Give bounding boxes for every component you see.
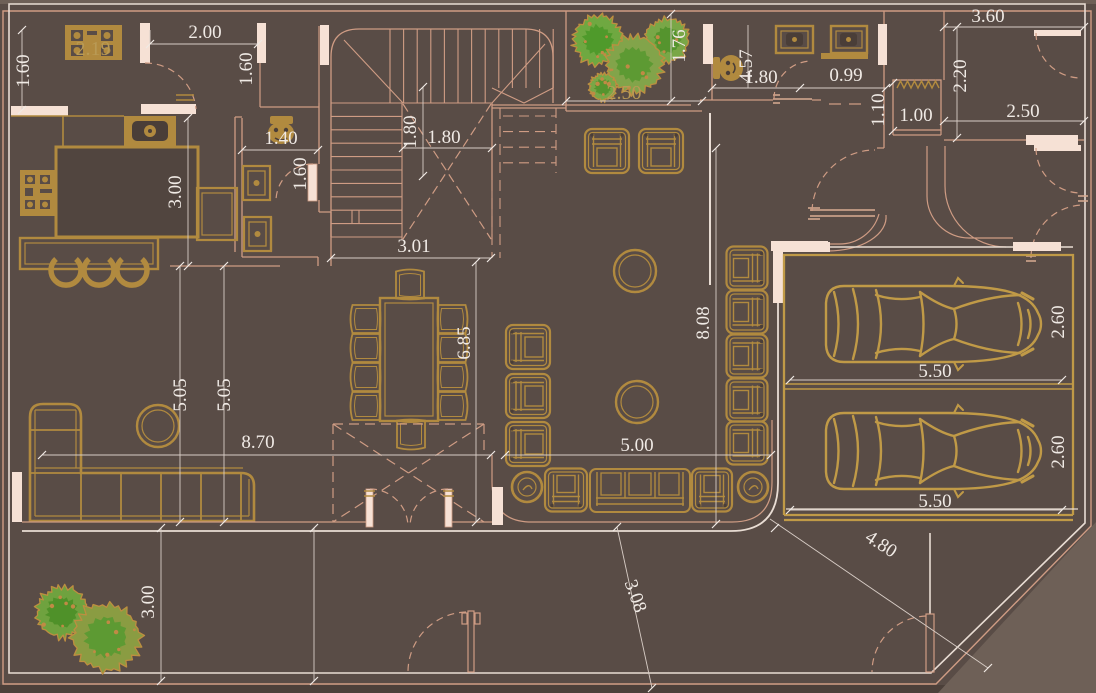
svg-text:2.50: 2.50 bbox=[1006, 101, 1039, 122]
svg-text:3.00: 3.00 bbox=[165, 175, 186, 208]
svg-text:1.10: 1.10 bbox=[868, 93, 889, 126]
svg-text:2.60: 2.60 bbox=[1048, 305, 1069, 338]
svg-text:5.05: 5.05 bbox=[170, 378, 191, 411]
svg-text:2.19: 2.19 bbox=[76, 38, 111, 60]
svg-text:5.50: 5.50 bbox=[918, 361, 951, 382]
svg-text:1.00: 1.00 bbox=[899, 105, 932, 126]
svg-text:1.80: 1.80 bbox=[400, 115, 421, 148]
svg-text:0.99: 0.99 bbox=[829, 65, 862, 86]
svg-text:8.08: 8.08 bbox=[693, 306, 714, 339]
svg-text:1.80: 1.80 bbox=[744, 67, 777, 88]
svg-text:8.70: 8.70 bbox=[241, 432, 274, 453]
svg-text:5.05: 5.05 bbox=[214, 378, 235, 411]
svg-text:2.60: 2.60 bbox=[1048, 435, 1069, 468]
svg-text:2.50: 2.50 bbox=[607, 82, 642, 104]
svg-text:3.00: 3.00 bbox=[138, 585, 159, 618]
svg-text:5.50: 5.50 bbox=[918, 491, 951, 512]
svg-text:1.60: 1.60 bbox=[236, 52, 257, 85]
svg-text:1.60: 1.60 bbox=[13, 54, 34, 87]
svg-text:1.60: 1.60 bbox=[290, 157, 311, 190]
svg-text:3.01: 3.01 bbox=[397, 236, 430, 257]
svg-text:1.76: 1.76 bbox=[669, 29, 690, 62]
svg-text:1.40: 1.40 bbox=[264, 128, 297, 149]
svg-text:1.80: 1.80 bbox=[427, 127, 460, 148]
svg-text:5.00: 5.00 bbox=[620, 435, 653, 456]
svg-text:3.60: 3.60 bbox=[971, 6, 1004, 27]
svg-text:2.00: 2.00 bbox=[188, 22, 221, 43]
svg-text:6.85: 6.85 bbox=[454, 326, 475, 359]
svg-text:2.20: 2.20 bbox=[950, 59, 971, 92]
